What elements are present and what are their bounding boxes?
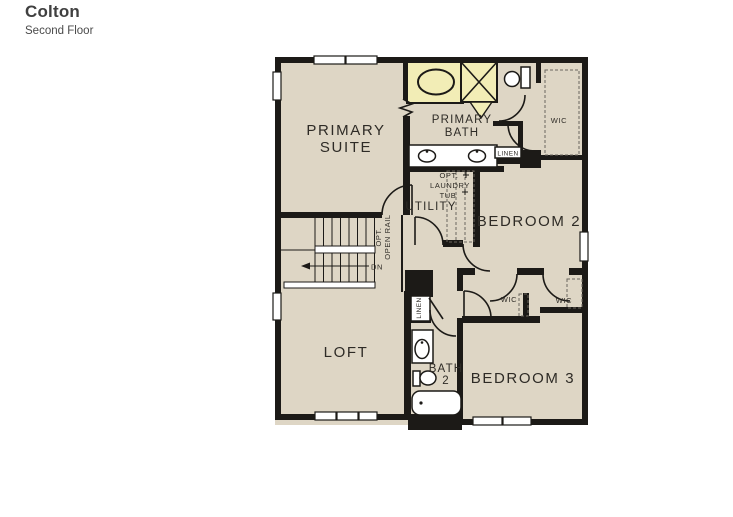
wall-segment: [536, 63, 541, 83]
window: [359, 412, 377, 420]
label-primary-bath: PRIMARY: [432, 114, 493, 126]
window: [503, 417, 531, 425]
label-opt-laundry: TUB: [440, 191, 457, 200]
faucet-dot: [426, 150, 429, 153]
wall-segment: [462, 316, 540, 323]
wall-segment: [404, 291, 411, 415]
label-primary-suite: SUITE: [320, 139, 372, 156]
label-opt-laundry: LAUNDRY: [430, 181, 470, 190]
window: [273, 293, 281, 320]
faucet-dot: [421, 341, 424, 344]
garden-tub-icon: [418, 70, 454, 95]
label-linen-hall: LINEN: [416, 297, 423, 318]
wall-segment: [569, 268, 588, 275]
label-primary-suite: PRIMARY: [306, 122, 385, 139]
wall-segment: [405, 270, 433, 297]
label-wic-right: WIC: [556, 296, 572, 305]
window: [473, 417, 502, 425]
wall-segment: [457, 268, 475, 275]
label-opt-open-rail: OPEN RAIL: [383, 214, 392, 259]
bathtub-icon: [412, 391, 461, 415]
wall-segment: [493, 121, 518, 126]
window: [337, 412, 358, 420]
label-utility: UTILITY: [405, 201, 456, 213]
window: [580, 232, 588, 261]
window: [314, 56, 345, 64]
wall-segment: [538, 155, 588, 160]
label-primary-bath: BATH: [445, 127, 480, 139]
window: [346, 56, 377, 64]
window: [315, 412, 336, 420]
wall-segment: [517, 268, 544, 275]
floor-plan-drawing: PRIMARY SUITE PRIMARY BATH WIC LINEN OPT…: [0, 0, 733, 517]
label-wic-primary: WIC: [551, 116, 567, 125]
tub-drain-dot: [419, 401, 422, 404]
wall-segment: [520, 150, 541, 168]
label-opt-laundry: OPT.: [439, 171, 458, 180]
stair-landing-rail: [315, 246, 375, 253]
window: [273, 72, 281, 100]
label-wic-left: WIC: [501, 295, 517, 304]
label-linen-primary: LINEN: [497, 151, 518, 158]
label-loft: LOFT: [324, 344, 369, 361]
label-opt-open-rail: OPT.: [374, 227, 383, 246]
wall-segment: [408, 414, 462, 430]
wall-segment: [275, 57, 281, 420]
plan-subtitle: Second Floor: [25, 25, 93, 37]
label-bath2: 2: [442, 375, 450, 387]
toilet-tank-icon: [521, 67, 530, 88]
floor-plan-page: Colton Second Floor: [0, 0, 733, 517]
label-bedroom3: BEDROOM 3: [471, 370, 575, 387]
plan-header: Colton Second Floor: [25, 2, 93, 37]
stair-bottom-rail: [284, 282, 375, 288]
plan-title: Colton: [25, 2, 93, 22]
label-bedroom2: BEDROOM 2: [477, 213, 581, 230]
label-dn: DN: [371, 263, 383, 272]
faucet-dot: [476, 150, 479, 153]
bath2-toilet-tank-icon: [413, 371, 420, 386]
label-bath2: BATH: [429, 363, 464, 375]
toilet-bowl-icon: [505, 72, 520, 87]
wall-segment: [280, 212, 382, 218]
wall-segment: [443, 240, 463, 247]
